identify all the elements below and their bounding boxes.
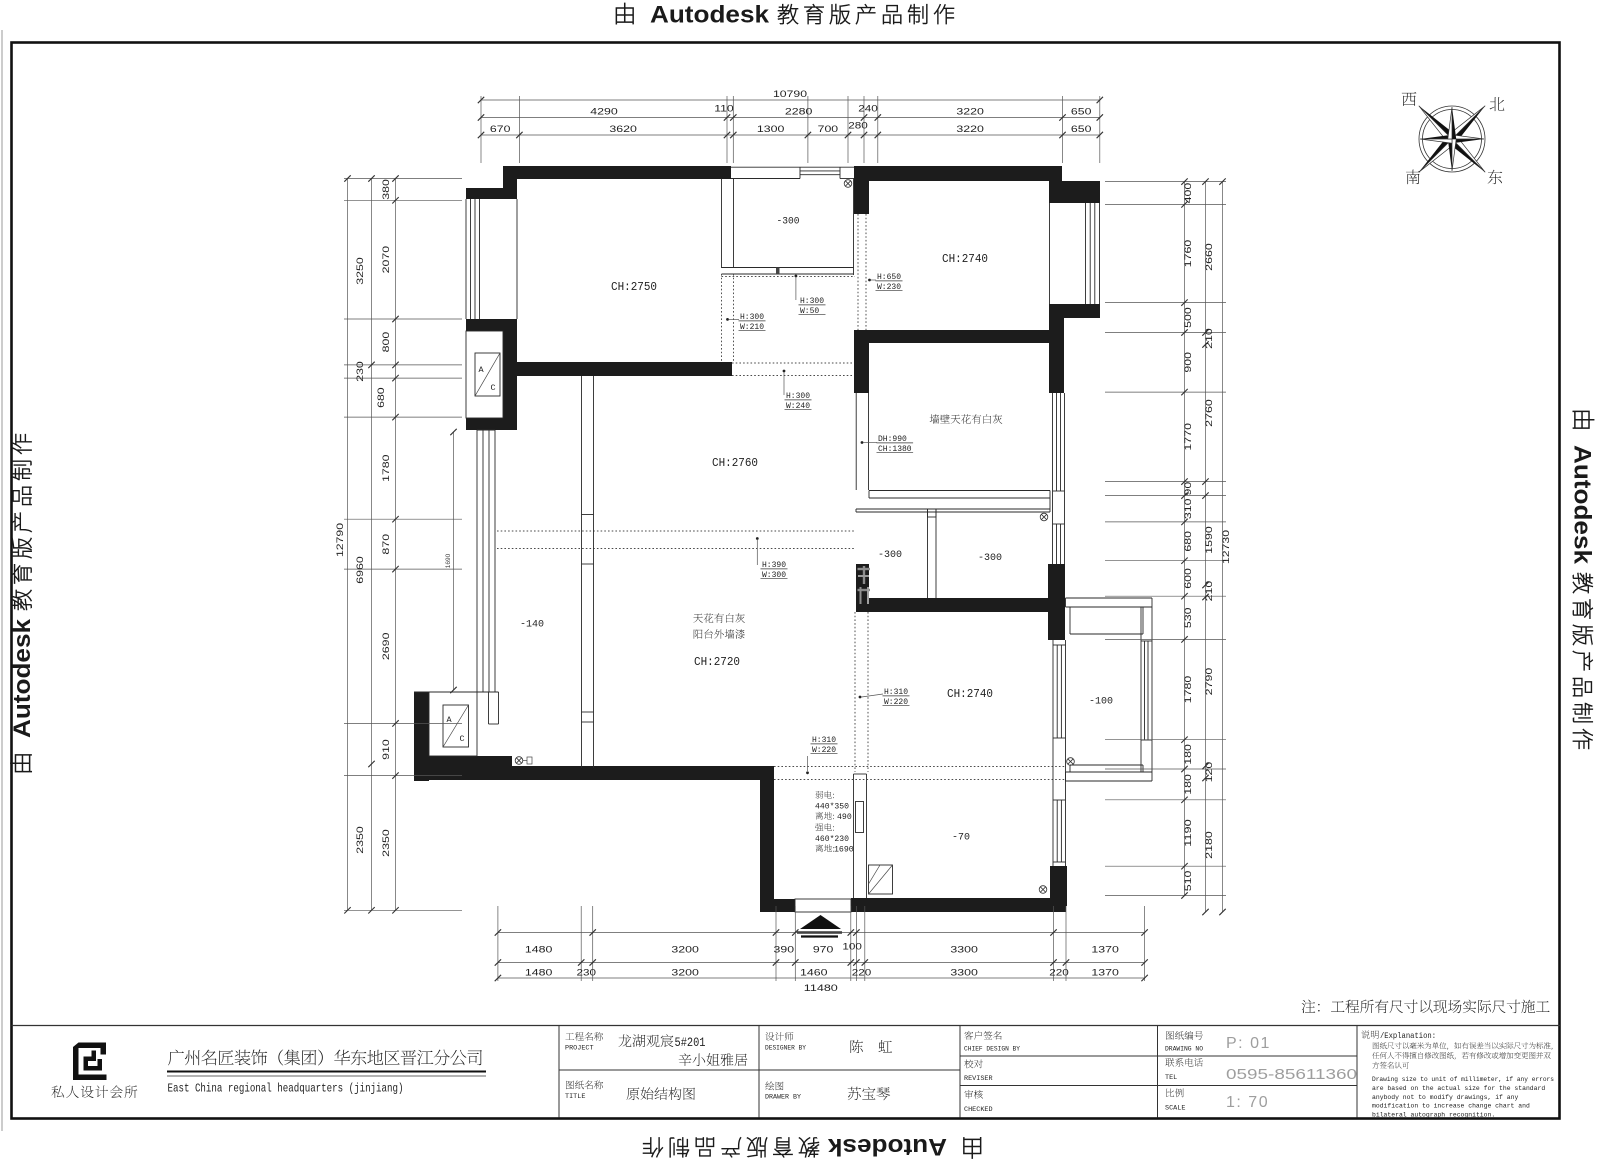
svg-text:3300: 3300 [950,968,978,978]
svg-text:-70: -70 [952,833,970,844]
svg-text:modification to increase chang: modification to increase change chart an… [1372,1103,1530,1111]
svg-text:are based on the actual size f: are based on the actual size for the sta… [1372,1085,1545,1093]
svg-text:1370: 1370 [1091,945,1119,955]
svg-text:680: 680 [1183,531,1193,552]
svg-text:CH:2760: CH:2760 [712,456,758,470]
svg-text:400: 400 [1183,183,1193,204]
svg-text:440*350: 440*350 [815,802,849,812]
svg-text:230: 230 [577,968,597,978]
svg-text:1300: 1300 [757,124,785,134]
svg-text:CH:2750: CH:2750 [611,280,657,294]
svg-text:anybody not to modify drawings: anybody not to modify drawings, if any [1372,1094,1518,1102]
svg-text:bilateral autograph recognitio: bilateral autograph recognition. [1372,1112,1495,1120]
svg-text:310: 310 [1183,498,1193,519]
svg-text:TEL: TEL [1165,1074,1177,1082]
svg-text:P: 01: P: 01 [1226,1035,1271,1052]
svg-text:2180: 2180 [1204,831,1214,859]
svg-text:1590: 1590 [1204,526,1214,554]
svg-text:5#201: 5#201 [675,1036,706,1050]
svg-text:CH:2740: CH:2740 [942,252,988,266]
svg-text:970: 970 [813,945,834,955]
svg-text:-140: -140 [520,620,544,631]
svg-text:3220: 3220 [956,107,984,117]
svg-text:180: 180 [1183,744,1193,765]
svg-text:C: C [490,383,495,393]
svg-text:11480: 11480 [804,983,838,993]
svg-text:390: 390 [774,945,795,955]
svg-text:12790: 12790 [335,523,345,557]
svg-text:-100: -100 [1089,697,1113,708]
svg-text:280: 280 [848,121,868,131]
svg-text:-300: -300 [878,550,902,561]
svg-text:870: 870 [381,534,391,555]
svg-text:2660: 2660 [1204,243,1214,271]
svg-text:DRAWING NO: DRAWING NO [1165,1046,1203,1054]
svg-text:1780: 1780 [381,454,391,482]
svg-text:650: 650 [1071,124,1092,134]
svg-text:CH:2720: CH:2720 [694,655,740,669]
svg-text:510: 510 [1183,871,1193,892]
svg-text:1480: 1480 [525,945,553,955]
svg-text:0595-85611360: 0595-85611360 [1226,1067,1357,1083]
svg-text:3200: 3200 [671,945,699,955]
svg-text:TITLE: TITLE [565,1093,585,1101]
svg-text:380: 380 [381,179,391,200]
svg-text:1770: 1770 [1183,423,1193,451]
svg-text:700: 700 [818,124,839,134]
svg-text:SCALE: SCALE [1165,1105,1185,1113]
svg-text:1370: 1370 [1091,968,1119,978]
svg-text:210: 210 [1204,581,1214,602]
svg-text:600: 600 [1183,568,1193,589]
svg-text:DRAWER BY: DRAWER BY [765,1094,801,1102]
svg-text:2280: 2280 [785,107,813,117]
svg-text:/Explanation:: /Explanation: [1380,1031,1436,1041]
svg-text:530: 530 [1183,607,1193,628]
svg-text:10790: 10790 [773,89,807,99]
svg-text:210: 210 [1204,328,1214,349]
svg-text:3250: 3250 [355,257,365,285]
svg-text:2350: 2350 [381,829,391,857]
svg-text:1780: 1780 [1183,676,1193,704]
svg-text:3300: 3300 [950,945,978,955]
svg-text:Autodesk: Autodesk [1569,445,1596,565]
svg-text:910: 910 [381,739,391,760]
svg-text:East China regional headquarte: East China regional headquarters (jinjia… [168,1082,404,1096]
svg-text:110: 110 [714,104,734,114]
svg-text:240: 240 [858,104,878,114]
svg-text:-300: -300 [777,217,800,228]
svg-text:680: 680 [376,387,386,408]
svg-text:12730: 12730 [1221,530,1231,564]
svg-text:2790: 2790 [1204,668,1214,696]
svg-text:230: 230 [355,361,365,382]
svg-text:CHECKED: CHECKED [964,1106,993,1114]
svg-text:3620: 3620 [609,124,637,134]
svg-text:120: 120 [1204,762,1214,783]
svg-text:2350: 2350 [355,826,365,854]
svg-text:REVISER: REVISER [964,1075,993,1083]
svg-text:Autodesk: Autodesk [650,2,770,29]
svg-text:Drawing size to unit of millim: Drawing size to unit of millimeter, if a… [1372,1076,1554,1084]
svg-text:6960: 6960 [355,556,365,584]
svg-text:1460: 1460 [800,968,828,978]
svg-text:670: 670 [490,124,511,134]
svg-text:800: 800 [381,332,391,353]
svg-text:220: 220 [852,968,872,978]
svg-text:1480: 1480 [525,968,553,978]
svg-text:2690: 2690 [381,633,391,661]
svg-text:4290: 4290 [590,107,618,117]
svg-text:3200: 3200 [671,968,699,978]
svg-text:490: 490 [837,813,852,822]
svg-text:DESIGNER BY: DESIGNER BY [765,1045,806,1053]
svg-text:Autodesk: Autodesk [9,618,36,738]
svg-text:C: C [459,734,464,744]
svg-text:100: 100 [842,942,862,952]
svg-text:A: A [478,365,484,375]
svg-text:CHIEF DESIGN BY: CHIEF DESIGN BY [964,1046,1020,1054]
svg-text:3220: 3220 [956,124,984,134]
svg-text:1760: 1760 [1183,240,1193,268]
svg-text:460*230: 460*230 [815,834,849,844]
svg-text:Autodesk: Autodesk [827,1133,947,1160]
svg-text:1690: 1690 [445,553,452,568]
svg-text:CH:2740: CH:2740 [947,687,993,701]
svg-text:1690: 1690 [834,846,854,855]
svg-text:PROJECT: PROJECT [565,1045,594,1053]
svg-text:90: 90 [1183,482,1193,496]
svg-text:1: 70: 1: 70 [1226,1094,1269,1111]
svg-text:1190: 1190 [1183,819,1193,847]
svg-text:220: 220 [1049,968,1069,978]
svg-text:2760: 2760 [1204,399,1214,427]
svg-text:900: 900 [1183,352,1193,373]
svg-text:180: 180 [1183,774,1193,795]
svg-text:650: 650 [1071,107,1092,117]
svg-text:2070: 2070 [381,246,391,274]
svg-text:-300: -300 [978,553,1002,564]
svg-text:500: 500 [1183,307,1193,328]
